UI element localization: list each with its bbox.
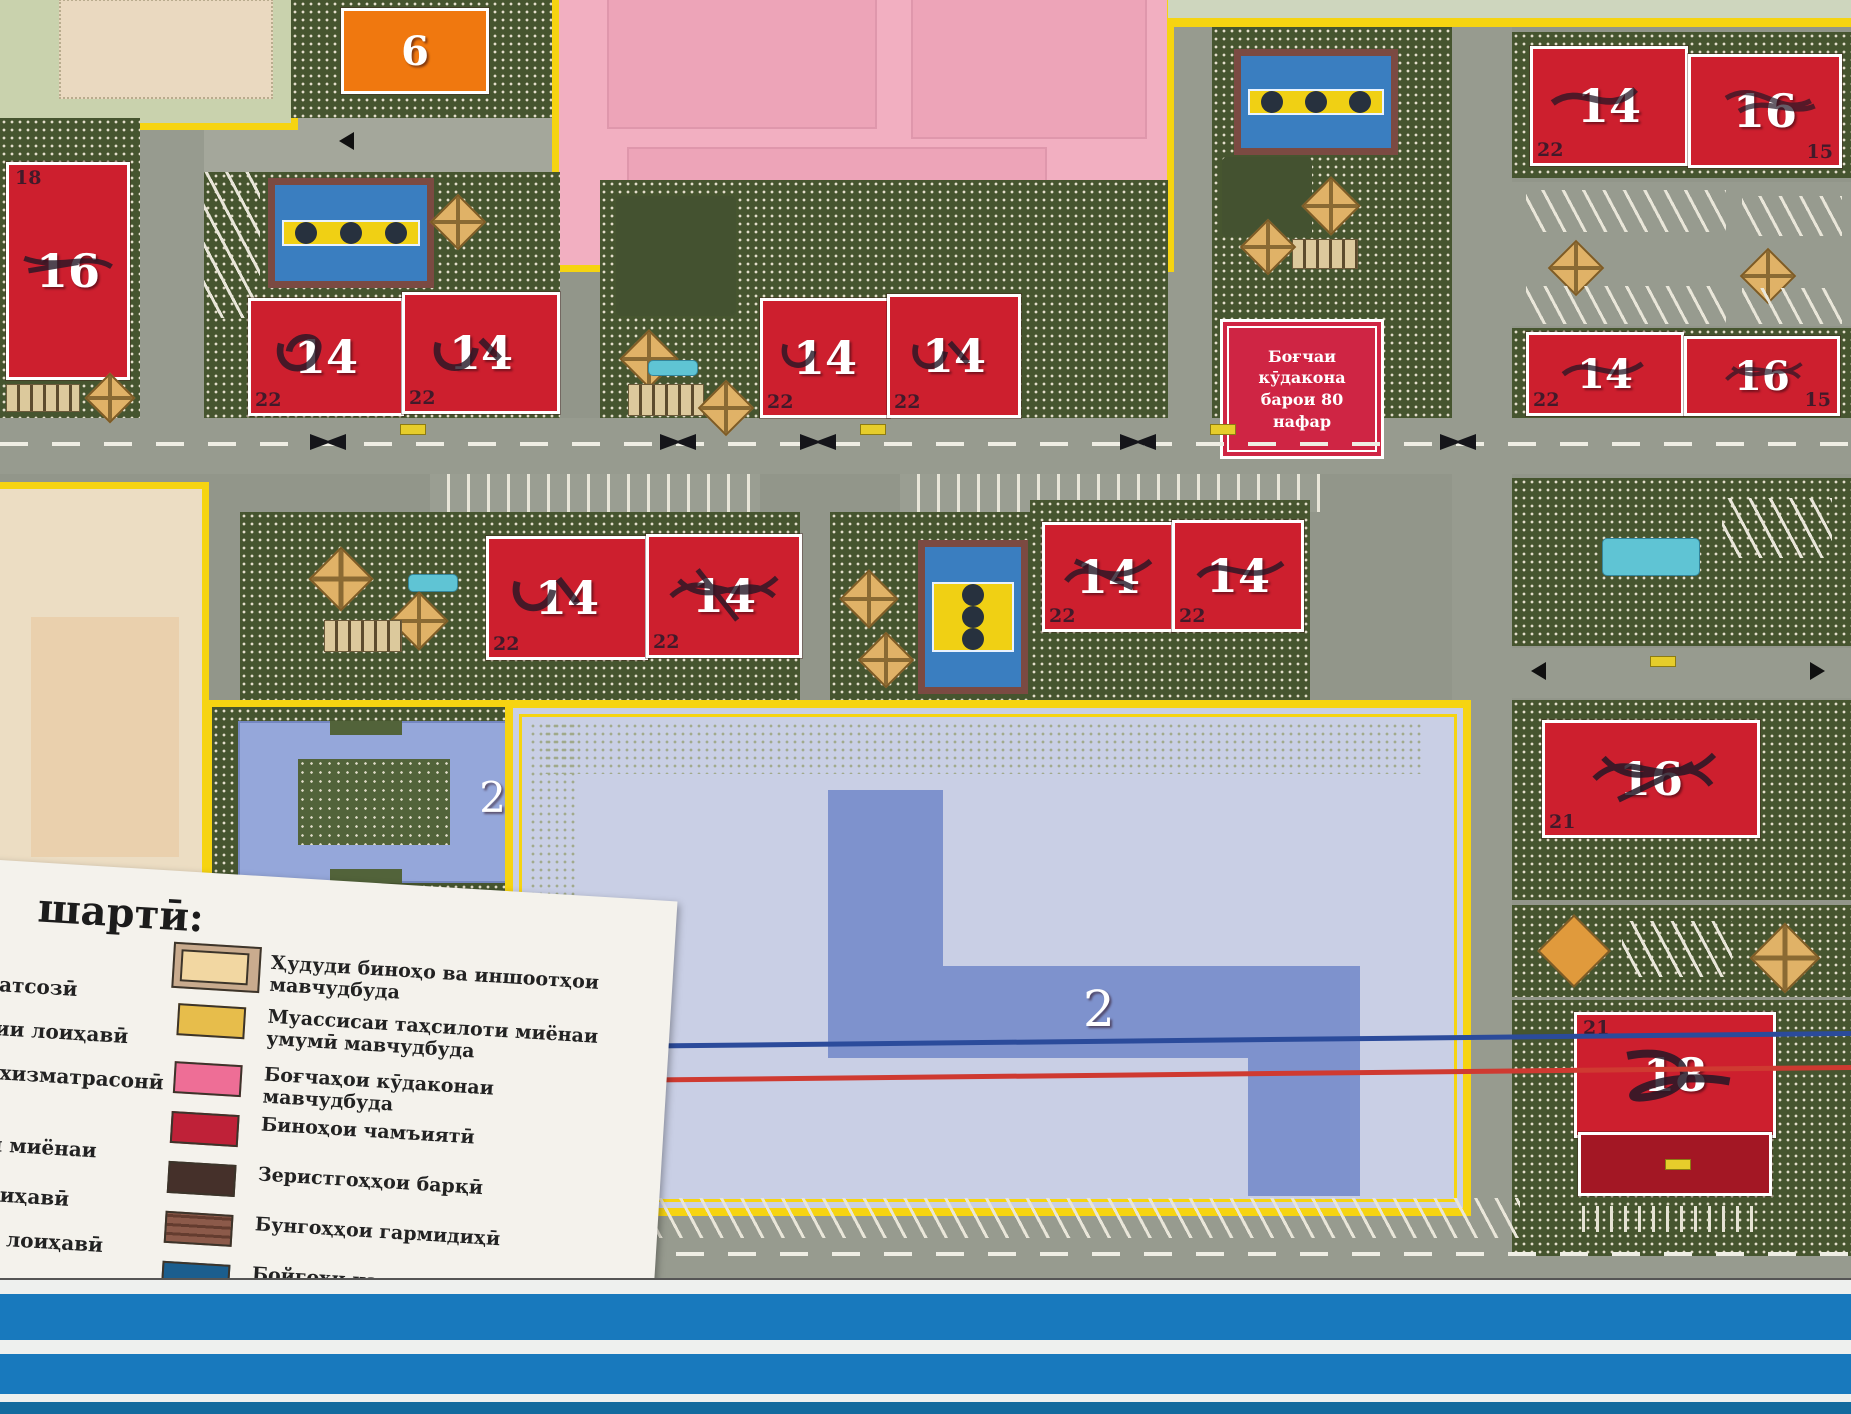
pond-icon (408, 574, 458, 592)
pink-building (911, 0, 1147, 139)
kindergarten-label: Боғчаи кӯдакона барои 80 нафар (1231, 346, 1373, 432)
building-18: 18 21 (1574, 1012, 1776, 1138)
building-number: 6 (401, 28, 429, 75)
corner-number: 22 (1533, 389, 1559, 411)
sandbox-icon (1537, 914, 1611, 988)
parking-stripes (1742, 288, 1842, 324)
court-field (1248, 89, 1384, 115)
building-14: 14 22 (1172, 520, 1304, 632)
frame-blue-stripe (0, 1294, 1851, 1340)
legend-item: Зеристгоҳҳои барқӣ (169, 1161, 598, 1187)
sandbox-icon (85, 373, 136, 424)
pink-building (607, 0, 877, 129)
road-label (1650, 656, 1676, 667)
sandbox-icon (619, 329, 678, 388)
building-14: 14 22 (1530, 46, 1688, 166)
existing-school-block (0, 0, 298, 130)
corner-number: 21 (1549, 811, 1575, 833)
building-6: 6 (341, 8, 489, 94)
block-row2-center: 14 22 14 22 (600, 180, 1168, 418)
legend-swatch (180, 949, 250, 985)
building-number: 14 (922, 329, 986, 383)
legend-left-item: лоиҳавӣ (0, 1181, 70, 1211)
sandbox-icon (839, 569, 898, 628)
block-right-playground (1512, 905, 1851, 997)
sandbox-icon (430, 194, 487, 251)
foundation-hatch (1582, 1206, 1762, 1232)
corner-number: 15 (1805, 389, 1831, 411)
path-stripes (1722, 498, 1832, 558)
legend-swatch (176, 1003, 246, 1039)
path-stripes (1622, 921, 1732, 977)
masterplan-poster: 6 Боғчаи кӯдакона барои 80 нафар 14 22 (0, 0, 1851, 1414)
school-building-arm (828, 790, 943, 1058)
parking-stripes (520, 1198, 1520, 1238)
building-number: 14 (1206, 549, 1270, 603)
legend-left-item: ратсозӣ (0, 971, 78, 1001)
playground-equipment-icon (324, 620, 402, 652)
legend-left-item: ги миёнаи (0, 1131, 97, 1162)
corner-number: 22 (653, 631, 679, 653)
building-16-tall: 18 16 (6, 162, 130, 380)
parking-stripes (430, 474, 760, 512)
pond-icon (1602, 538, 1700, 576)
court-field (932, 582, 1014, 652)
building-16: 16 15 (1684, 336, 1840, 416)
building-16: 16 15 (1688, 54, 1842, 168)
courtyard-notch (330, 721, 402, 735)
playground-equipment-icon (1292, 239, 1358, 269)
building-number: 16 (36, 244, 100, 298)
building-14: 14 22 (1526, 332, 1684, 416)
building-number: 2 (479, 773, 506, 822)
frame-blue-stripe (0, 1402, 1851, 1414)
corner-number: 22 (894, 391, 920, 413)
road-main (0, 418, 1851, 474)
corner-number: 22 (1179, 605, 1205, 627)
road-label (860, 424, 886, 435)
legend-title: шартӣ: (36, 884, 205, 941)
frame-line (0, 1278, 1851, 1280)
basketball-court (268, 178, 434, 288)
plan-boundary-line (1168, 18, 1851, 27)
legend-label: Муассисаи таҳсилоти миёнаи умумӣ мавчудб… (266, 1007, 608, 1071)
building-number: 18 (1643, 1048, 1707, 1102)
block-row3-right: 14 22 14 22 (1030, 500, 1310, 700)
corner-number: 22 (1537, 139, 1563, 161)
building-number: 2 (1083, 980, 1115, 1038)
building-number: 14 (1577, 351, 1633, 398)
building-number: 14 (1076, 550, 1140, 604)
playground-equipment-icon (6, 384, 80, 412)
parking-stripes (1742, 196, 1842, 236)
court-field (282, 220, 420, 246)
legend-swatch (173, 1061, 243, 1097)
parking-stripes (1526, 286, 1726, 324)
parking-zone-right (1512, 182, 1851, 326)
building-number: 16 (1619, 752, 1683, 806)
block-row2-left: 14 22 14 22 (204, 172, 560, 418)
sandbox-icon (858, 632, 915, 689)
block-left: 18 16 (0, 118, 140, 418)
block-orange: 6 (291, 0, 560, 118)
basketball-court (1234, 49, 1398, 155)
sandbox-icon (1750, 923, 1821, 994)
kindergarten-80-building: Боғчаи кӯдакона барои 80 нафар (1220, 319, 1384, 459)
building-18-lower-wing (1578, 1132, 1772, 1196)
existing-building-footprint (59, 0, 273, 99)
corner-number: 18 (15, 167, 41, 189)
direction-arrow (1810, 662, 1834, 680)
direction-arrow (1522, 662, 1546, 680)
legend-panel: шартӣ: ратсозӣ тии лоиҳавӣ а хизматрасон… (0, 859, 677, 1330)
corner-number: 22 (409, 387, 435, 409)
block-row3-court (830, 512, 1030, 700)
corner-number: 15 (1807, 141, 1833, 163)
pond-icon (648, 360, 698, 376)
existing-building-footprint (31, 617, 179, 857)
block-row3-left: 14 22 14 22 (240, 512, 800, 700)
legend-swatch (167, 1161, 237, 1197)
block-far-right-2: 14 22 16 15 (1512, 328, 1851, 418)
building-14: 14 22 (402, 292, 560, 414)
path-dots (543, 722, 1423, 774)
road-centerline (0, 442, 1851, 446)
corner-number: 22 (493, 633, 519, 655)
block-far-right-1: 14 22 16 15 (1512, 32, 1851, 178)
building-14: 14 22 (760, 298, 890, 418)
building-16: 16 21 (1542, 720, 1760, 838)
legend-swatch (170, 1111, 240, 1147)
legend-label: Бунгоҳҳои гармидиҳӣ (254, 1214, 501, 1251)
sandbox-icon (308, 546, 373, 611)
legend-item: Ҳудуди биноҳо ва иншоотҳои мавчудбуда (182, 949, 611, 975)
legend-left-item: ии лоиҳавӣ (0, 1225, 104, 1257)
building-number: 14 (1577, 79, 1641, 133)
existing-zone-beige (0, 482, 209, 916)
legend-item: Бунгоҳҳои гармидиҳӣ (166, 1211, 595, 1237)
building-2-ring: 2 (238, 721, 514, 883)
block-right-16: 16 21 (1512, 700, 1851, 900)
corner-number: 22 (767, 391, 793, 413)
legend-label: Ҳудуди биноҳо ва иншоотҳои мавчудбуда (269, 953, 611, 1017)
road-label (1665, 1159, 1691, 1170)
legend-label: Биноҳои чамъиятӣ (260, 1114, 475, 1149)
building-number: 14 (692, 569, 756, 623)
building-number: 14 (793, 331, 857, 385)
frame-blue-stripe (0, 1354, 1851, 1394)
basketball-court (918, 540, 1028, 694)
building-number: 16 (1733, 84, 1797, 138)
road-vertical-left (140, 118, 204, 428)
building-14: 14 22 (486, 536, 648, 660)
building-number: 14 (449, 326, 513, 380)
legend-left-item: а хизматрасонӣ (0, 1059, 164, 1094)
building-number: 14 (535, 571, 599, 625)
parking-stripes (204, 172, 260, 318)
road-label (1210, 424, 1236, 435)
building-14: 14 22 (887, 294, 1021, 418)
road-label (400, 424, 426, 435)
block-right-pond (1512, 478, 1851, 646)
school-building-arm (1248, 966, 1360, 1196)
corner-number: 22 (255, 389, 281, 411)
legend-label: Зеристгоҳҳои барқӣ (257, 1164, 483, 1200)
parking-stripes (1526, 190, 1726, 232)
block-right-top: Боғчаи кӯдакона барои 80 нафар (1212, 27, 1452, 418)
building-14: 14 22 (248, 298, 404, 416)
playground-equipment-icon (628, 384, 704, 416)
building-14: 14 22 (646, 534, 802, 658)
building-number: 14 (294, 330, 358, 384)
corner-number: 22 (1049, 605, 1075, 627)
building-number: 16 (1734, 353, 1790, 400)
courtyard (298, 759, 450, 845)
building-14: 14 22 (1042, 522, 1174, 632)
direction-arrow (330, 132, 354, 150)
road-vertical-center (1168, 26, 1212, 426)
legend-swatch (164, 1211, 234, 1247)
legend-left-item: тии лоиҳавӣ (0, 1015, 129, 1048)
